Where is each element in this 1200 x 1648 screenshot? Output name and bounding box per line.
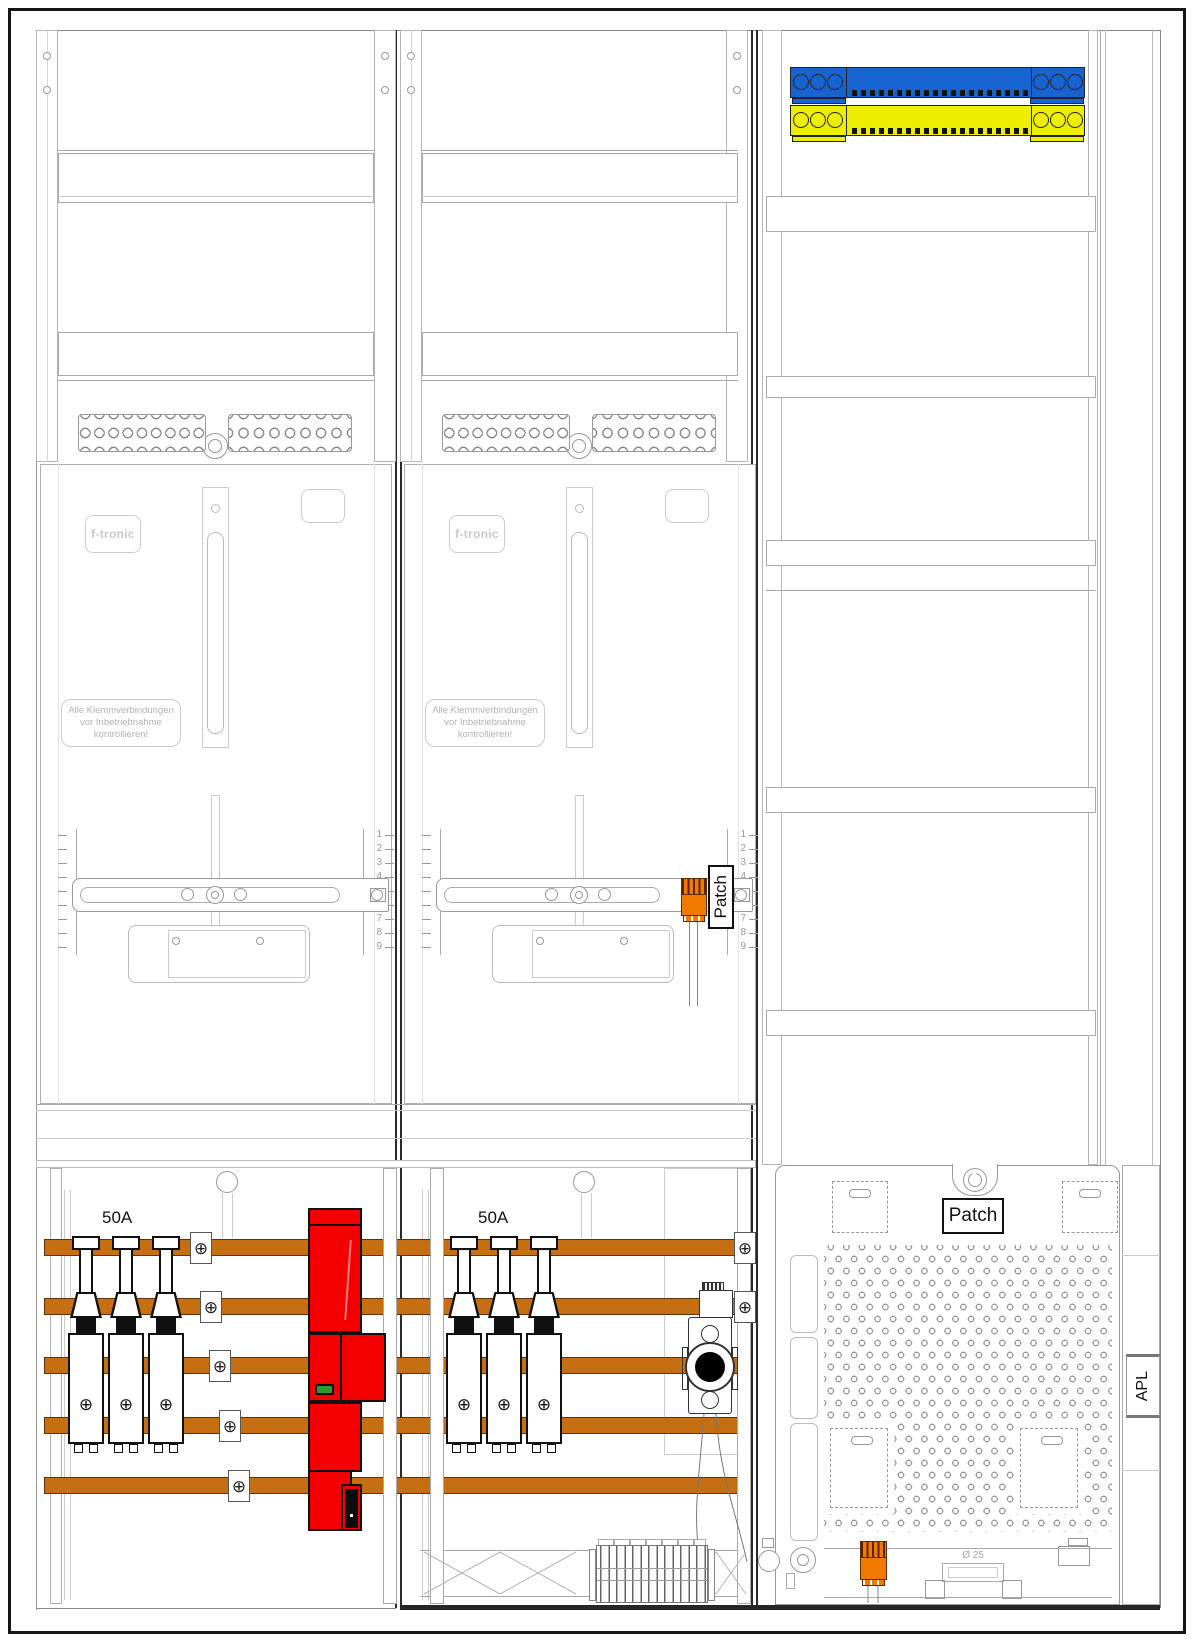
terminal-hub-inner xyxy=(208,439,222,453)
brand-logo-1: f-tronic xyxy=(91,527,135,541)
cable-channel-segment xyxy=(790,1423,818,1541)
bottom-line-left xyxy=(36,1608,396,1609)
meter-slot-hole-2 xyxy=(575,504,584,513)
breaker-foot xyxy=(129,1444,138,1453)
rail-end-clip-circle xyxy=(735,889,747,901)
cable-channel-segment xyxy=(790,1337,818,1419)
sls-indicator-green xyxy=(315,1384,334,1395)
ct-screw-top xyxy=(701,1325,719,1343)
cable-channel-segment xyxy=(790,1255,818,1333)
breaker-screw: ⊕ xyxy=(534,1394,554,1414)
breaker-foot xyxy=(89,1444,98,1453)
breaker-foot xyxy=(74,1444,83,1453)
busbar-clamp: ⊕ xyxy=(228,1470,250,1502)
busbar-blue-cap-line xyxy=(846,67,847,98)
busbar-yellow-tab xyxy=(792,136,846,142)
field2-cover-line-2 xyxy=(422,380,738,381)
hanger-line xyxy=(591,1193,592,1238)
meter-panel-2-inner-line xyxy=(738,464,739,1104)
cable-gland-tab xyxy=(762,1538,774,1548)
small-box xyxy=(1058,1546,1090,1566)
busbar-yellow-cap-line xyxy=(846,105,847,136)
warning-line: vor Inbetriebnahme xyxy=(426,717,544,729)
breaker-pole-pad xyxy=(534,1318,554,1333)
busbar-yellow-terminal-strip xyxy=(852,128,1028,134)
breaker-screw: ⊕ xyxy=(454,1394,474,1414)
rail-hub-inner xyxy=(575,891,583,899)
din-upright xyxy=(430,1168,444,1604)
busbar-clamp: ⊕ xyxy=(209,1350,231,1382)
breaker-screw: ⊕ xyxy=(156,1394,176,1414)
right-edge-divider xyxy=(1122,1470,1160,1471)
breaker-pole-body xyxy=(446,1333,482,1444)
breaker-pole-stem xyxy=(497,1248,511,1294)
meter-panel-2-inner-line xyxy=(422,464,423,1104)
field1-cover-line xyxy=(58,150,374,151)
breaker-pole-pad xyxy=(76,1318,96,1333)
handle-plate-inner-2 xyxy=(532,930,670,978)
screw-icon xyxy=(381,52,389,60)
diameter-label: Ø 25 xyxy=(942,1550,1004,1562)
right-edge-divider xyxy=(1122,1255,1160,1256)
field3-shelf-line xyxy=(766,590,1096,591)
panel-hole xyxy=(573,1171,595,1193)
busbar-blue-hole xyxy=(1067,74,1083,90)
breaker-pole-pad xyxy=(116,1318,136,1333)
field1-cover-line-2 xyxy=(58,380,374,381)
busbar-blue-terminal-strip xyxy=(852,90,1028,96)
patch-terminal-meter xyxy=(681,878,707,895)
handle-screw xyxy=(172,937,180,945)
meter-slot-2 xyxy=(571,532,588,734)
warning-line: kontrollieren! xyxy=(426,729,544,741)
breaker-screw: ⊕ xyxy=(116,1394,136,1414)
busbar-yellow-tab xyxy=(1030,136,1084,142)
rail-end-clip-circle xyxy=(371,889,383,901)
sls-switch-lower-body xyxy=(308,1402,362,1472)
busbar-yellow-cap-line xyxy=(1031,105,1032,136)
din-upright xyxy=(50,1168,62,1604)
busbar-clamp: ⊕ xyxy=(200,1291,222,1323)
warning-line: Alle Klemmverbindungen xyxy=(426,705,544,717)
patch-terminal-bottom-feet xyxy=(862,1579,885,1586)
busbar-yellow-hole xyxy=(1050,112,1066,128)
apl-label: APL xyxy=(1126,1354,1160,1418)
meter-cutout-2 xyxy=(665,489,709,523)
breaker-foot xyxy=(169,1444,178,1453)
small-box-step xyxy=(1068,1538,1088,1546)
breaker-screw: ⊕ xyxy=(494,1394,514,1414)
field1-blank-cover-2 xyxy=(58,332,374,376)
breaker-foot xyxy=(547,1444,556,1453)
breaker-screw: ⊕ xyxy=(76,1394,96,1414)
hanger-line xyxy=(222,1193,223,1238)
knockout-slot xyxy=(1079,1189,1101,1198)
breaker-pole-stem xyxy=(119,1248,133,1294)
breaker-pole-stem xyxy=(457,1248,471,1294)
terminal-block xyxy=(442,414,570,452)
meter-slot-hole-1 xyxy=(211,504,220,513)
patch-terminal-meter-feet xyxy=(683,915,705,922)
handle-screw xyxy=(256,937,264,945)
breaker-foot xyxy=(507,1444,516,1453)
cabinet-drawing: { "colors": { "busbar_blue": "#1763D2", … xyxy=(0,0,1200,1648)
field3-shelf xyxy=(766,540,1096,566)
breaker-pole-body xyxy=(68,1333,104,1444)
field2-cover-inner-line xyxy=(422,196,738,197)
field3-shelf xyxy=(766,376,1096,398)
hanger-line xyxy=(581,1193,582,1238)
handle-screw xyxy=(620,937,628,945)
field2-left-rail-line xyxy=(411,30,412,462)
patch-label-meter-text: Patch xyxy=(711,875,731,918)
terminal-block xyxy=(78,414,206,452)
warning-label-2: Alle Klemmverbindungen vor Inbetriebnahm… xyxy=(425,699,545,747)
breaker-foot xyxy=(532,1444,541,1453)
rail-foot xyxy=(925,1580,945,1599)
brand-logo-plate-2: f-tronic xyxy=(449,515,505,553)
warning-line: kontrollieren! xyxy=(62,729,180,741)
meter-panel-1-inner-line xyxy=(58,464,59,1104)
rail-roller xyxy=(598,888,611,901)
breaker-pole-stem xyxy=(79,1248,93,1294)
rail-roller xyxy=(545,888,558,901)
ct-window-inner xyxy=(695,1352,725,1382)
field3-shelf xyxy=(766,196,1096,232)
knockout-slot xyxy=(1041,1436,1063,1445)
screw-icon xyxy=(407,86,415,94)
cable-gland-inner xyxy=(797,1554,809,1566)
patch-label-meter: Patch xyxy=(708,865,734,929)
field2-blank-cover-2 xyxy=(422,332,738,376)
gland-slot-box-inner xyxy=(948,1567,998,1578)
breaker-pole-body xyxy=(108,1333,144,1444)
busbar-clamp: ⊕ xyxy=(190,1232,212,1264)
sls-toggle-dot xyxy=(350,1514,353,1517)
rail-hub-inner xyxy=(211,891,219,899)
busbar-clamp: ⊕ xyxy=(734,1232,756,1264)
patch-label-right-text: Patch xyxy=(949,1205,998,1227)
terminal-block xyxy=(592,414,716,452)
panel-bottom-line xyxy=(36,1110,756,1111)
patch-terminal-bottom xyxy=(860,1541,887,1558)
breaker-pole-body xyxy=(486,1333,522,1444)
breaker-pole-stem xyxy=(537,1248,551,1294)
busbar-yellow-hole xyxy=(1067,112,1083,128)
field3-shelf xyxy=(766,1010,1096,1036)
meter-slot-1 xyxy=(207,532,224,734)
screw-icon xyxy=(407,52,415,60)
breaker-foot xyxy=(492,1444,501,1453)
busbar-blue-hole xyxy=(810,74,826,90)
busbar-yellow-hole xyxy=(1033,112,1049,128)
busbar-yellow-hole xyxy=(793,112,809,128)
busbar-blue-hole xyxy=(793,74,809,90)
screw-icon xyxy=(733,86,741,94)
warning-line: vor Inbetriebnahme xyxy=(62,717,180,729)
meter-panel-1-inner-line xyxy=(374,464,375,1104)
screw-icon xyxy=(381,86,389,94)
cabinet-top-line xyxy=(36,30,1160,31)
breaker-pole-pad xyxy=(494,1318,514,1333)
terminal-strip-end xyxy=(589,1549,596,1601)
field1-right-rail xyxy=(374,30,396,462)
hanger-line xyxy=(232,1193,233,1238)
rail-foot xyxy=(1002,1580,1022,1599)
busbar-yellow-hole xyxy=(810,112,826,128)
screw-icon xyxy=(733,52,741,60)
patch-terminal-bottom-body xyxy=(860,1557,887,1580)
breaker-pole-body xyxy=(148,1333,184,1444)
busbar-clamp: ⊕ xyxy=(734,1291,756,1323)
busbar-blue-hole xyxy=(1033,74,1049,90)
right-side-line-4 xyxy=(1160,30,1161,1608)
rail-roller xyxy=(234,888,247,901)
breaker-foot xyxy=(467,1444,476,1453)
bottom-dark-band xyxy=(400,1605,1160,1610)
lower-top-line xyxy=(36,1138,756,1139)
busbar-blue-hole xyxy=(827,74,843,90)
breaker-pole-pad xyxy=(454,1318,474,1333)
panel-hole xyxy=(216,1171,238,1193)
terminal-strip xyxy=(596,1545,708,1603)
cable-gland xyxy=(758,1550,780,1572)
cable-gland-tab xyxy=(786,1573,795,1589)
breaker-foot xyxy=(452,1444,461,1453)
meter-cutout-1 xyxy=(301,489,345,523)
breaker-foot xyxy=(154,1444,163,1453)
ct-screw-bottom xyxy=(701,1391,719,1409)
sls-switch-mid-right xyxy=(340,1333,386,1402)
field2-cover-line xyxy=(422,150,738,151)
brand-logo-2: f-tronic xyxy=(455,527,499,541)
warning-line: Alle Klemmverbindungen xyxy=(62,705,180,717)
patch-terminal-meter-body xyxy=(681,894,707,916)
breaker-pole-body xyxy=(526,1333,562,1444)
terminal-strip-end xyxy=(708,1549,715,1601)
screw-icon xyxy=(43,52,51,60)
breaker-rating-label-2: 50A xyxy=(478,1208,538,1228)
busbar-blue-tab xyxy=(1030,98,1084,104)
busbar-blue-hole xyxy=(1050,74,1066,90)
field3-shelf xyxy=(766,787,1096,813)
screw-icon xyxy=(43,86,51,94)
ct-clamp xyxy=(699,1290,733,1318)
rail-roller xyxy=(181,888,194,901)
breaker-pole-stem xyxy=(159,1248,173,1294)
field1-cover-inner-line xyxy=(58,196,374,197)
sls-toggle xyxy=(345,1489,358,1528)
busbar-blue-cap-line xyxy=(1031,67,1032,98)
patch-label-right: Patch xyxy=(942,1198,1004,1234)
sls-switch-upper-body xyxy=(308,1224,362,1333)
warning-label-1: Alle Klemmverbindungen vor Inbetriebnahm… xyxy=(61,699,181,747)
terminal-hub-inner xyxy=(572,439,586,453)
field2-right-rail xyxy=(726,30,748,462)
breaker-foot xyxy=(114,1444,123,1453)
handle-plate-inner-1 xyxy=(168,930,306,978)
breaker-rating-label-1: 50A xyxy=(102,1208,162,1228)
busbar-blue-tab xyxy=(792,98,846,104)
terminal-block xyxy=(228,414,352,452)
field1-left-rail-line xyxy=(47,30,48,462)
brand-logo-plate-1: f-tronic xyxy=(85,515,141,553)
knockout-slot xyxy=(849,1189,871,1198)
panel-bottom-line xyxy=(36,1104,756,1105)
bottom-rail-line xyxy=(820,1597,1112,1598)
breaker-pole-pad xyxy=(156,1318,176,1333)
busbar-yellow-hole xyxy=(827,112,843,128)
busbar-clamp: ⊕ xyxy=(219,1410,241,1442)
lower-top-band xyxy=(36,1160,756,1168)
apl-label-text: APL xyxy=(1134,1371,1152,1401)
knockout-slot xyxy=(851,1436,873,1445)
handle-screw xyxy=(536,937,544,945)
